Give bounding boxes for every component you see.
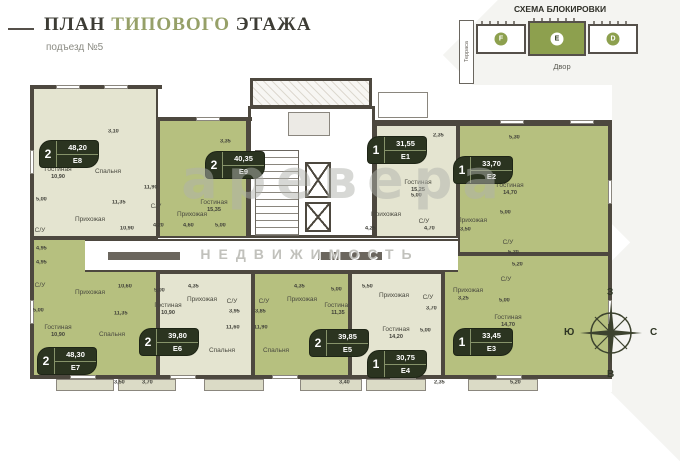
room-name: Прихожая [457, 217, 487, 224]
apartment-code: E3 [471, 343, 512, 356]
window [104, 85, 128, 89]
dim-label: 11,90 [254, 325, 268, 331]
rooms-count: 2 [310, 330, 327, 356]
room-label: С/У [410, 218, 438, 226]
dim-label: 3,40 [339, 380, 350, 386]
dim-label: 11,35 [114, 311, 128, 317]
rooms-count: 2 [40, 141, 57, 167]
apartment-area: 33,45 [471, 329, 512, 343]
room-area: 10,90 [30, 174, 86, 181]
compass-east-label: В [607, 369, 614, 380]
title-dash [8, 28, 34, 30]
room-label: Прихожая [442, 287, 494, 295]
apartment-code: E5 [327, 344, 368, 357]
room-name: Спальня [209, 347, 235, 354]
apartment-e6-badge[interactable]: 239,80E6 [140, 329, 198, 355]
yard-label: Двор [540, 62, 584, 71]
room-name: Гостиная [382, 326, 409, 333]
block-ticks [593, 21, 633, 24]
room-name: Гостиная [44, 324, 71, 331]
wall [30, 85, 162, 89]
title-part-3: ЭТАЖА [236, 14, 312, 35]
dim-label: 4,70 [424, 226, 435, 232]
room-label: Спальня [88, 331, 136, 339]
room-label: Прихожая [166, 211, 218, 219]
room-area: 14,20 [368, 334, 424, 341]
block-e-active[interactable]: E [528, 21, 586, 56]
dim-label: 5,30 [509, 135, 520, 141]
dim-label: 3,25 [458, 296, 469, 302]
room-name: Гостиная [324, 302, 351, 309]
room-name: Прихожая [287, 296, 317, 303]
apartment-code: E7 [55, 362, 96, 375]
balcony [468, 379, 538, 391]
rooms-count: 1 [368, 351, 385, 377]
room-label: С/У [492, 276, 520, 284]
title-part-1: ПЛАН [44, 14, 105, 35]
room-label: Спальня [252, 347, 300, 355]
room-name: Прихожая [379, 292, 409, 299]
dim-label: 5,00 [331, 287, 342, 293]
dim-label: 3,35 [220, 139, 231, 145]
room-name: Прихожая [75, 216, 105, 223]
apartment-area: 30,75 [385, 351, 426, 365]
brand-watermark: аревера [80, 148, 610, 211]
dim-label: 4,35 [294, 284, 305, 290]
dim-label: 10,90 [120, 226, 134, 232]
room-area: 11,35 [310, 310, 366, 317]
terrace-outline: Терраса [459, 20, 474, 84]
compass-north-label: С [650, 327, 657, 338]
room-label: С/У [250, 298, 278, 306]
block-ticks [481, 21, 521, 24]
room-name: С/У [503, 239, 514, 246]
dim-label: 4,25 [365, 226, 376, 232]
window [56, 85, 80, 89]
window [500, 120, 524, 124]
dim-label: 10,60 [118, 284, 132, 290]
room-label: Гостиная10,90 [140, 302, 196, 317]
room-label: Гостиная10,90 [30, 166, 86, 181]
apartment-e5-badge[interactable]: 239,85E5 [310, 330, 368, 356]
dim-label: 4,95 [36, 260, 47, 266]
room-name: Прихожая [453, 287, 483, 294]
apartment-code: E6 [157, 343, 198, 356]
block-e-label: E [551, 32, 564, 45]
dim-label: 5,00 [499, 298, 510, 304]
dim-label: 3,50 [114, 380, 125, 386]
window [272, 375, 298, 379]
dim-label: 5,50 [362, 284, 373, 290]
dim-label: 4,95 [36, 246, 47, 252]
dim-label: 3,70 [142, 380, 153, 386]
room-area: 14,70 [480, 322, 536, 329]
room-name: С/У [35, 227, 46, 234]
dim-label: 5,20 [508, 250, 519, 256]
room-name: С/У [423, 294, 434, 301]
window [70, 375, 96, 379]
room-area: 10,90 [30, 332, 86, 339]
room-label: Прихожая [360, 211, 412, 219]
compass-rose-icon [578, 300, 644, 366]
apartment-area: 39,80 [157, 329, 198, 343]
dim-label: 5,00 [33, 308, 44, 314]
room-name: Прихожая [75, 289, 105, 296]
window [196, 117, 220, 121]
room-label: Прихожая [64, 289, 116, 297]
dim-label: 3,50 [460, 227, 471, 233]
dim-label: 3,70 [426, 306, 437, 312]
entrance-subtitle: подъезд №5 [46, 42, 103, 53]
room-name: С/У [227, 298, 238, 305]
window [496, 375, 522, 379]
dim-label: 4,35 [188, 284, 199, 290]
compass-south-label: Ю [564, 327, 574, 338]
room-name: Прихожая [177, 211, 207, 218]
room-label: С/У [494, 239, 522, 247]
title-part-2: ТИПОВОГО [111, 14, 230, 35]
apartment-e7-badge[interactable]: 248,30E7 [38, 348, 96, 374]
room-name: Прихожая [187, 296, 217, 303]
loggia-outline [378, 92, 428, 118]
dim-label: 2,35 [434, 380, 445, 386]
block-f[interactable]: F [476, 24, 526, 54]
room-name: Спальня [263, 347, 289, 354]
room-label: Прихожая [368, 292, 420, 300]
apartment-area: 39,85 [327, 330, 368, 344]
brand-watermark-caption: НЕДВИЖИМОСТЬ [150, 246, 470, 262]
dim-label: 2,35 [433, 133, 444, 139]
room-label: Прихожая [276, 296, 328, 304]
room-label: Гостиная14,70 [480, 314, 536, 329]
roof-vestibule-hatch [250, 78, 372, 108]
balcony [56, 379, 114, 391]
room-name: С/У [259, 298, 270, 305]
room-label: С/У [218, 298, 246, 306]
room-label: Прихожая [446, 217, 498, 225]
dim-label: 5,00 [36, 197, 47, 203]
terrace-label: Терраса [464, 41, 470, 62]
room-name: С/У [35, 282, 46, 289]
room-label: Прихожая [64, 216, 116, 224]
dim-label: 3,10 [108, 129, 119, 135]
block-d[interactable]: D [588, 24, 638, 54]
rooms-count: 2 [38, 348, 55, 374]
room-name: Спальня [99, 331, 125, 338]
block-f-label: F [495, 33, 508, 46]
room-label: Спальня [198, 347, 246, 355]
dim-label: 5,20 [512, 262, 523, 268]
apartment-area: 48,30 [55, 348, 96, 362]
rooms-count: 2 [140, 329, 157, 355]
balcony [366, 379, 426, 391]
block-d-label: D [607, 33, 620, 46]
window [170, 375, 196, 379]
balcony [300, 379, 362, 391]
dim-label: 3,95 [229, 309, 240, 315]
balcony [204, 379, 264, 391]
dim-label: 5,00 [154, 288, 165, 294]
room-label: Гостиная14,20 [368, 326, 424, 341]
dim-label: 5,00 [420, 328, 431, 334]
wall [30, 375, 612, 379]
page-title: ПЛАН ТИПОВОГО ЭТАЖА [44, 14, 312, 36]
compass-west-label: З [607, 287, 613, 298]
window [570, 120, 594, 124]
blocking-scheme-title: СХЕМА БЛОКИРОВКИ [452, 4, 668, 14]
apartment-e4-badge[interactable]: 130,75E4 [368, 351, 426, 377]
dim-label: 4,20 [153, 223, 164, 229]
room-name: Гостиная [494, 314, 521, 321]
room-area: 10,90 [140, 310, 196, 317]
room-name: С/У [501, 276, 512, 283]
dim-label: 11,60 [226, 325, 240, 331]
dim-label: 5,00 [215, 223, 226, 229]
apartment-e3-badge[interactable]: 133,45E3 [454, 329, 512, 355]
room-label: С/У [26, 227, 54, 235]
room-name: Прихожая [371, 211, 401, 218]
block-ticks [533, 18, 581, 21]
room-name: Гостиная [44, 166, 71, 173]
dim-label: 4,60 [183, 223, 194, 229]
room-label: С/У [26, 282, 54, 290]
room-label: С/У [414, 294, 442, 302]
room-label: Гостиная11,35 [310, 302, 366, 317]
apartment-code: E4 [385, 365, 426, 378]
room-name: С/У [419, 218, 430, 225]
dim-label: 5,20 [510, 380, 521, 386]
dim-label: 3,85 [255, 309, 266, 315]
rooms-count: 1 [454, 329, 471, 355]
room-label: Гостиная10,90 [30, 324, 86, 339]
shaft-box [288, 112, 330, 136]
